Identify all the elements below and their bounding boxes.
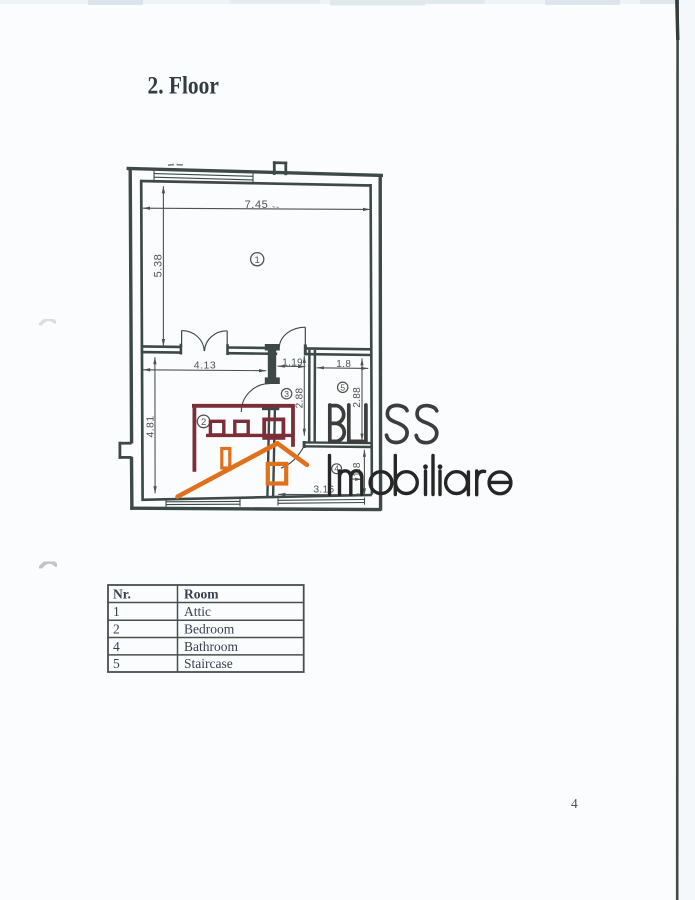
svg-text:Staircase: Staircase: [184, 656, 233, 671]
svg-text:2: 2: [201, 417, 206, 428]
svg-text:5: 5: [340, 382, 345, 392]
svg-text:Nr.: Nr.: [113, 586, 131, 601]
svg-text:4.81: 4.81: [145, 415, 157, 437]
svg-text:1.8: 1.8: [336, 359, 351, 370]
svg-text:4: 4: [113, 639, 120, 654]
svg-text:3.16: 3.16: [313, 484, 334, 495]
svg-text:1: 1: [255, 255, 260, 266]
svg-text:5: 5: [113, 656, 120, 671]
svg-text:Room: Room: [184, 586, 219, 601]
svg-text:2.88: 2.88: [294, 388, 305, 409]
svg-text:Bedroom: Bedroom: [184, 621, 235, 636]
svg-text:5.38: 5.38: [152, 254, 164, 278]
svg-text:7.45: 7.45: [245, 199, 269, 211]
svg-text:4: 4: [571, 796, 578, 811]
svg-text:2.88: 2.88: [352, 387, 363, 408]
svg-text:4.13: 4.13: [194, 359, 216, 371]
svg-text:Bathroom: Bathroom: [184, 639, 238, 654]
svg-text:2: 2: [113, 621, 120, 636]
svg-text:3: 3: [284, 389, 289, 399]
svg-text:2. Floor: 2. Floor: [148, 72, 219, 100]
svg-text:1: 1: [113, 604, 120, 619]
svg-text:1.19: 1.19: [282, 357, 303, 368]
svg-text:Attic: Attic: [184, 604, 211, 619]
